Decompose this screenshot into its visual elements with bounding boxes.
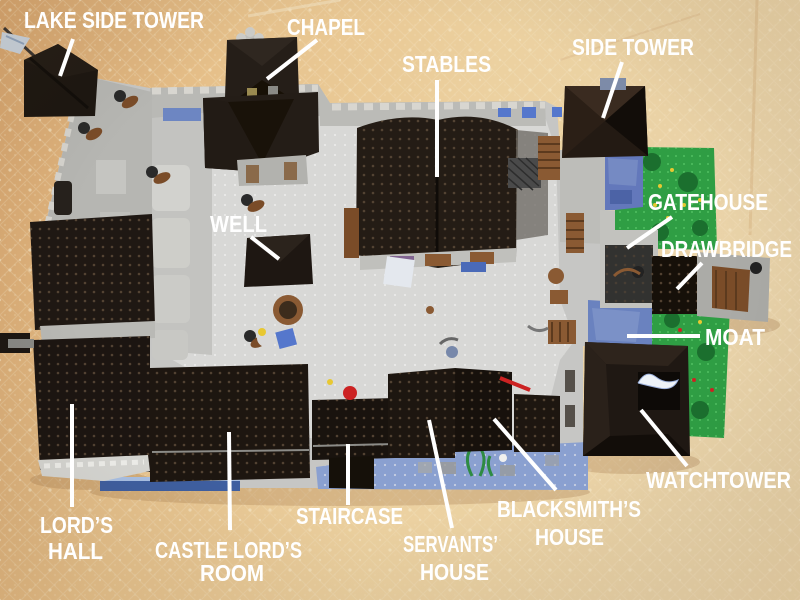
- svg-text:HALL: HALL: [48, 538, 103, 564]
- svg-text:LAKE SIDE TOWER: LAKE SIDE TOWER: [24, 7, 204, 33]
- svg-text:LORD’S: LORD’S: [40, 512, 113, 538]
- svg-text:MOAT: MOAT: [705, 324, 766, 350]
- svg-text:WATCHTOWER: WATCHTOWER: [646, 467, 791, 493]
- svg-text:WELL: WELL: [210, 211, 267, 237]
- svg-text:HOUSE: HOUSE: [535, 524, 604, 550]
- svg-text:STABLES: STABLES: [402, 51, 491, 77]
- svg-text:GATEHOUSE: GATEHOUSE: [648, 189, 768, 215]
- svg-text:HOUSE: HOUSE: [420, 559, 489, 585]
- svg-text:CHAPEL: CHAPEL: [287, 14, 365, 40]
- svg-text:STAIRCASE: STAIRCASE: [296, 503, 403, 529]
- svg-text:DRAWBRIDGE: DRAWBRIDGE: [661, 236, 792, 262]
- svg-text:SIDE TOWER: SIDE TOWER: [572, 34, 694, 60]
- svg-text:BLACKSMITH’S: BLACKSMITH’S: [497, 496, 641, 522]
- svg-text:ROOM: ROOM: [200, 560, 264, 586]
- svg-text:SERVANTS’: SERVANTS’: [403, 531, 498, 557]
